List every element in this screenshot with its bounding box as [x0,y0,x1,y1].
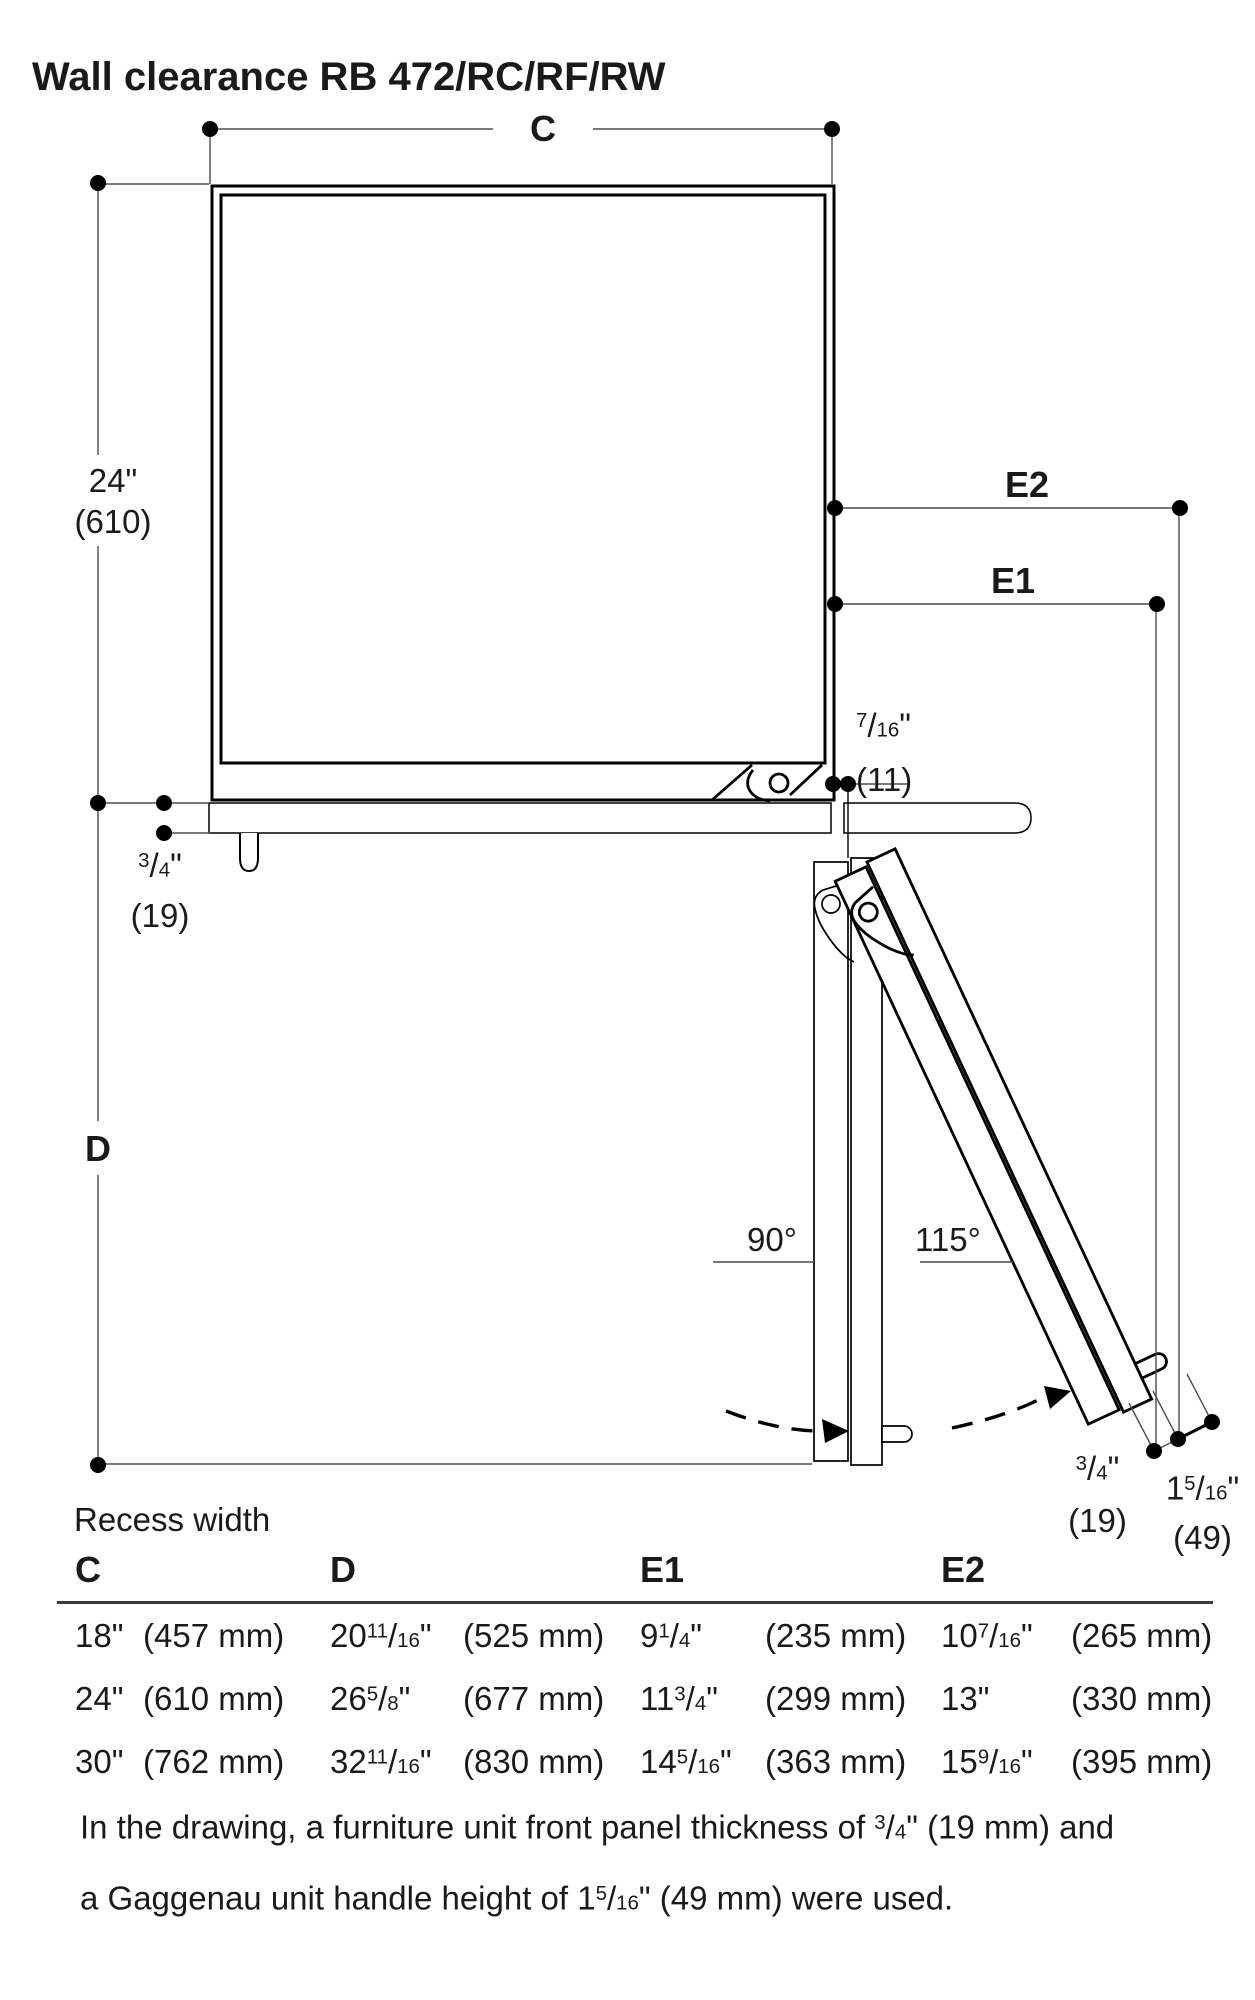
gap-fraction: 7/16" [856,696,912,755]
footnote: In the drawing, a furniture unit front p… [80,1792,1200,1935]
frac-unit: " [906,1808,918,1845]
frac-den: 8 [387,1692,398,1715]
frac-unit: " [639,1880,651,1917]
frac-num: 9 [978,1746,989,1769]
frac-den: 16 [1205,1481,1228,1504]
frac-unit: " [399,1680,411,1717]
table-header-rule [57,1601,1213,1604]
frac-den: 4 [695,1692,706,1715]
cell-e1-in: 145/16" [640,1743,732,1781]
frac-unit: " [420,1743,432,1780]
cell-d-in: 2011/16" [330,1617,432,1655]
frac-whole: 10 [941,1617,978,1654]
table-caption: Recess width [74,1501,270,1539]
frac-unit: " [720,1743,732,1780]
cell-e2-mm: (265 mm) [1071,1617,1212,1655]
frac-num: 11 [367,1620,388,1643]
frac-whole: 14 [640,1743,677,1780]
frac-num: 3 [674,1683,685,1706]
cell-d-mm: (525 mm) [463,1617,604,1655]
panel-mm: (19) [100,893,220,939]
col-header-e2: E2 [941,1549,985,1591]
cell-e2-in: 159/16" [941,1743,1033,1781]
ext-line-tip [1153,1391,1178,1439]
frac-whole: 1 [1166,1469,1184,1506]
frac-num: 1 [658,1620,669,1643]
frac-whole: 32 [330,1743,367,1780]
dim-label-d: D [85,1128,111,1170]
frac-unit: " [420,1617,432,1654]
dim-label-panel-tip: 3/4" (19) [1040,1440,1155,1545]
frac-num: 3 [874,1811,885,1834]
hinge-pivot-icon [770,774,788,792]
cell-c-mm: (762 mm) [143,1743,284,1781]
footnote-text: (19 mm) and [918,1808,1114,1845]
angle-label-90: 90° [747,1221,797,1259]
frac-slash: / [388,1743,397,1780]
frac-unit: " [706,1680,718,1717]
leveling-foot [240,833,258,871]
frac-num: 7 [978,1620,989,1643]
ext-line-tip [1187,1374,1212,1422]
frac-num: 5 [677,1746,688,1769]
cell-c-in: 24" [75,1680,123,1718]
frac-unit: " [899,706,911,743]
frac-slash: / [670,1617,679,1654]
footnote-text: In the drawing, a furniture unit front p… [80,1808,874,1845]
arrowhead-icon [1044,1386,1071,1409]
frac-slash: / [388,1617,397,1654]
angle-label-115: 115° [915,1221,981,1259]
frac-slash: / [607,1880,616,1917]
frac-den: 16 [397,1629,420,1652]
cell-e1-mm: (235 mm) [765,1617,906,1655]
cell-e1-in: 91/4" [640,1617,702,1655]
installation-diagram-page: Wall clearance RB 472/RC/RF/RW C 24" (61… [0,0,1255,2000]
frac-den: 16 [998,1755,1021,1778]
handle-tip-fraction: 15/16" [1145,1461,1255,1515]
frac-slash: / [150,846,159,883]
frac-whole: 9 [640,1617,658,1654]
depth-mm: (610) [53,501,173,542]
swing-arc-115 [952,1397,1044,1428]
frac-slash: / [1196,1469,1205,1506]
frac-slash: / [688,1743,697,1780]
frac-den: 16 [998,1629,1021,1652]
frac-den: 16 [877,718,900,741]
plinth-panel-right [844,803,1031,833]
cell-e2-in: 13" [941,1680,989,1718]
frac-den: 16 [616,1892,639,1915]
panel-fraction: 3/4" [100,838,220,893]
frac-den: 4 [679,1629,690,1652]
frac-num: 7 [856,709,867,732]
frac-num: 5 [367,1683,378,1706]
cell-d-mm: (677 mm) [463,1680,604,1718]
cell-c-mm: (610 mm) [143,1680,284,1718]
footnote-text: a Gaggenau unit handle height of [80,1880,577,1917]
frac-num: 5 [596,1882,607,1905]
frac-den: 4 [159,858,170,881]
plinth-panel-left [209,803,831,833]
cell-c-mm: (457 mm) [143,1617,284,1655]
cell-e2-mm: (395 mm) [1071,1743,1212,1781]
cell-d-in: 3211/16" [330,1743,432,1781]
depth-inches: 24" [53,460,173,501]
frac-whole: 26 [330,1680,367,1717]
frac-unit: " [1021,1743,1033,1780]
col-header-e1: E1 [640,1549,684,1591]
gap-mm: (11) [856,755,912,805]
frac-unit: " [978,1680,990,1717]
cell-d-mm: (830 mm) [463,1743,604,1781]
frac-slash: / [989,1617,998,1654]
frac-num: 3 [138,849,149,872]
cell-e1-mm: (299 mm) [765,1680,906,1718]
dim-label-c: C [493,106,593,152]
frac-den: 4 [895,1820,906,1843]
cell-d-in: 265/8" [330,1680,410,1718]
swing-arc-90 [726,1411,820,1431]
panel-tip-mm: (19) [1040,1497,1155,1545]
recess-width-table: C D E1 E2 18" (457 mm) 2011/16" (525 mm)… [57,1547,1213,1807]
frac-unit: " [1227,1469,1239,1506]
frac-whole: 13 [941,1680,978,1717]
frac-unit: " [1021,1617,1033,1654]
page-title: Wall clearance RB 472/RC/RF/RW [32,55,666,100]
footnote-line-1: In the drawing, a furniture unit front p… [80,1792,1200,1863]
frac-whole: 11 [640,1680,674,1717]
frac-den: 16 [697,1755,720,1778]
appliance-outline [221,195,825,763]
frac-num: 11 [367,1746,388,1769]
frac-den: 4 [1096,1461,1107,1484]
cell-e1-mm: (363 mm) [765,1743,906,1781]
dim-label-handle-tip: 15/16" (49) [1145,1461,1255,1560]
frac-whole: 15 [941,1743,978,1780]
frac-whole: 20 [330,1617,367,1654]
frac-slash: / [1087,1449,1096,1486]
frac-slash: / [686,1680,695,1717]
frac-unit: " [170,846,182,883]
dim-label-gap: 7/16" (11) [856,696,912,805]
footnote-line-2: a Gaggenau unit handle height of 15/16" … [80,1863,1200,1934]
frac-slash: / [886,1808,895,1845]
cell-c-in: 30" [75,1743,123,1781]
frac-num: 5 [1184,1472,1195,1495]
cell-e2-in: 107/16" [941,1617,1033,1655]
frac-unit: " [690,1617,702,1654]
door-open-115 [833,836,1178,1428]
frac-slash: / [989,1743,998,1780]
col-header-d: D [330,1549,356,1591]
footnote-text: (49 mm) were used. [651,1880,954,1917]
dim-label-e2: E2 [977,464,1077,506]
dim-label-e1: E1 [963,560,1063,602]
cell-e2-mm: (330 mm) [1071,1680,1212,1718]
cell-c-in: 18" [75,1617,123,1655]
dim-label-panel-left: 3/4" (19) [100,838,220,939]
frac-den: 16 [397,1755,420,1778]
frac-unit: " [1108,1449,1120,1486]
frac-slash: / [378,1680,387,1717]
panel-tip-fraction: 3/4" [1040,1440,1155,1497]
frac-whole: 1 [577,1880,595,1917]
col-header-c: C [75,1549,101,1591]
dim-label-depth: 24" (610) [53,460,173,542]
frac-num: 3 [1076,1452,1087,1475]
frac-slash: / [867,706,876,743]
cell-e1-in: 113/4" [640,1680,718,1718]
